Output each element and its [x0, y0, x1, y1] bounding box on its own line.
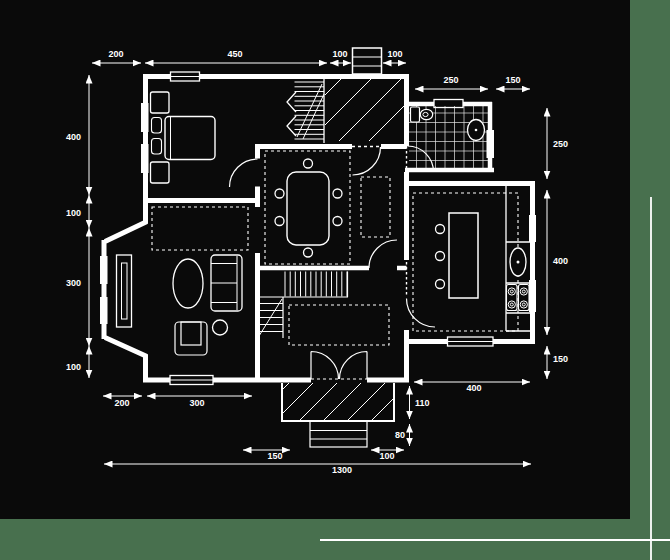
dim-top-100a: 100 [332, 49, 347, 59]
dim-porch-150: 150 [267, 451, 282, 461]
blueprint-page: 200 450 100 100 250 150 400 100 300 100 … [0, 0, 670, 560]
dim-left-100b: 100 [66, 362, 81, 372]
floor-plan: 200 450 100 100 250 150 400 100 300 100 … [0, 0, 670, 560]
dim-bottom-300: 300 [189, 398, 204, 408]
dim-steps-100: 100 [379, 451, 394, 461]
window-kitchen-bottom [448, 337, 494, 346]
dim-bottom-200: 200 [114, 398, 129, 408]
window-bedroom-left-2 [141, 144, 149, 173]
dim-left-100a: 100 [66, 208, 81, 218]
dim-porch-110: 110 [415, 398, 430, 408]
dim-total-1300: 1300 [332, 465, 352, 475]
kitchen-sink [510, 248, 526, 276]
window-bedroom-left-1 [141, 103, 149, 132]
dim-top-450: 450 [227, 49, 242, 59]
window-top-bedroom [171, 72, 200, 81]
dim-upper-right-150: 150 [505, 75, 520, 85]
sofa [211, 255, 242, 311]
kitchen-island [449, 213, 478, 298]
dim-left-400: 400 [66, 132, 81, 142]
dim-bottom-400: 400 [466, 383, 481, 393]
window-kitchen-right-2 [529, 280, 536, 312]
dim-left-300: 300 [66, 278, 81, 288]
dim-steps-80: 80 [395, 430, 405, 440]
door-bathroom-right [487, 130, 495, 158]
dim-right-400: 400 [553, 256, 568, 266]
bathroom-sink [468, 120, 485, 141]
dim-upper-right-250: 250 [443, 75, 458, 85]
dim-top-100b: 100 [387, 49, 402, 59]
dim-right-250: 250 [553, 139, 568, 149]
window-living-bottom [170, 376, 213, 385]
dim-top-200: 200 [108, 49, 123, 59]
chimney [353, 48, 382, 74]
window-kitchen-right-1 [529, 215, 536, 242]
dim-right-150: 150 [553, 354, 568, 364]
window-bathroom-top [434, 100, 463, 108]
window-bay-2 [100, 297, 108, 324]
dining-table [287, 172, 329, 245]
window-bay-1 [100, 256, 108, 284]
